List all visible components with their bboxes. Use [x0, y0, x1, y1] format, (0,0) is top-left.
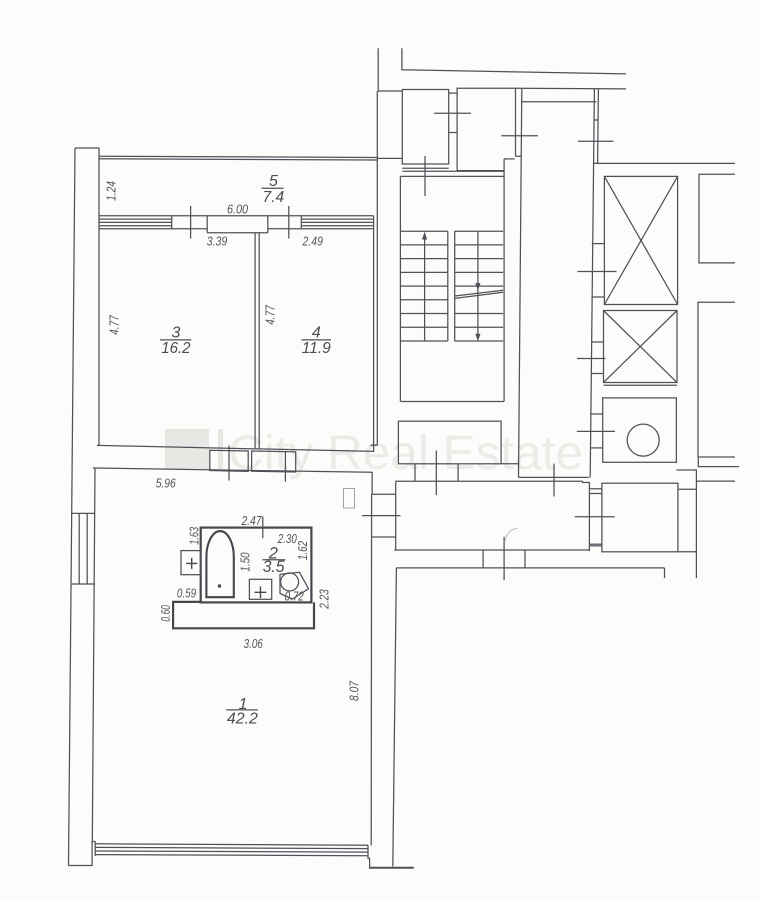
- svg-text:4.77: 4.77: [108, 314, 122, 334]
- svg-text:2.49: 2.49: [302, 234, 323, 248]
- svg-text:4.77: 4.77: [263, 304, 277, 324]
- svg-text:11.9: 11.9: [302, 340, 331, 357]
- svg-text:1.63: 1.63: [187, 527, 201, 545]
- svg-text:2.47: 2.47: [241, 514, 263, 528]
- svg-text:8.07: 8.07: [348, 680, 362, 701]
- svg-text:3.5: 3.5: [263, 558, 286, 576]
- svg-text:6.00: 6.00: [227, 202, 248, 216]
- svg-text:1.62: 1.62: [296, 541, 310, 560]
- svg-text:16.2: 16.2: [161, 340, 190, 357]
- svg-text:5.96: 5.96: [156, 476, 177, 490]
- svg-text:0.60: 0.60: [159, 605, 173, 622]
- svg-text:3.06: 3.06: [244, 637, 264, 651]
- svg-text:2.23: 2.23: [317, 589, 331, 609]
- svg-text:7.4: 7.4: [263, 189, 285, 206]
- svg-text:5: 5: [269, 173, 278, 190]
- svg-text:0.59: 0.59: [177, 586, 196, 600]
- svg-text:3.39: 3.39: [207, 234, 228, 248]
- svg-text:2.30: 2.30: [277, 532, 297, 546]
- svg-text:0.72: 0.72: [285, 589, 304, 603]
- svg-text:1.50: 1.50: [238, 552, 252, 571]
- svg-text:42.2: 42.2: [227, 711, 258, 728]
- svg-text:1.24: 1.24: [105, 181, 119, 201]
